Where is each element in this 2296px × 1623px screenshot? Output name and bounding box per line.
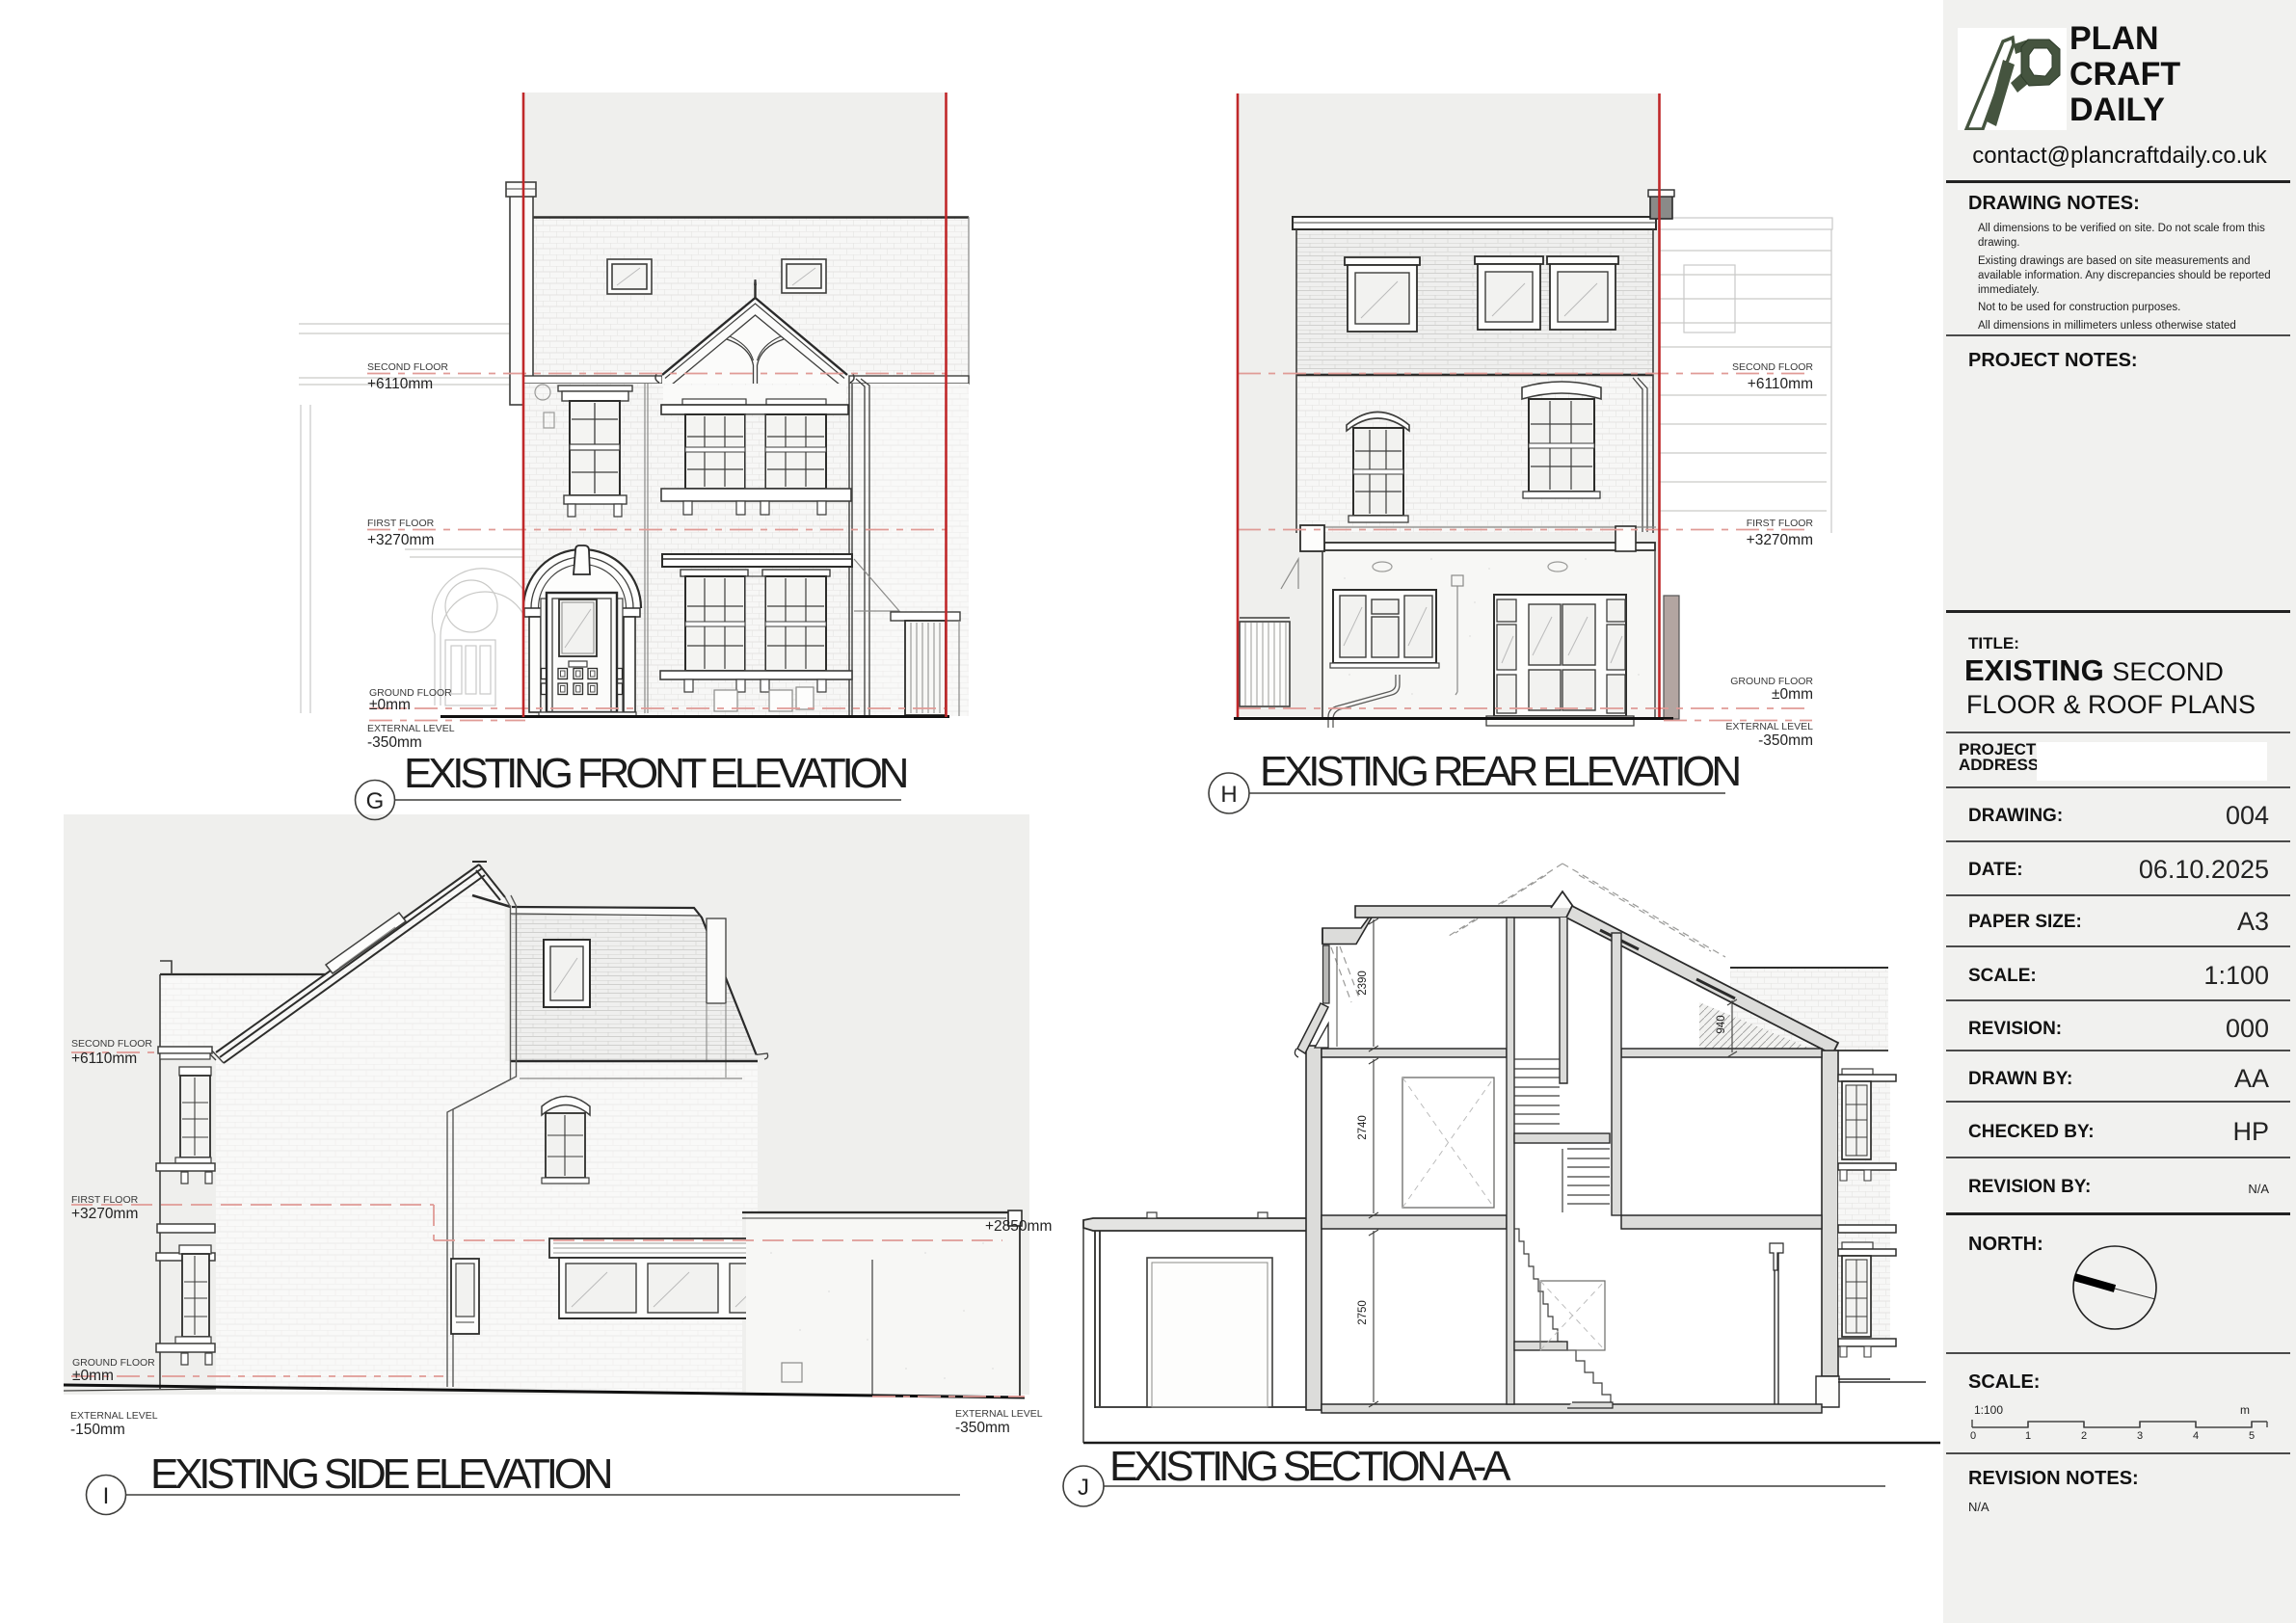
svg-text:FIRST FLOOR: FIRST FLOOR <box>71 1194 139 1206</box>
svg-text:3: 3 <box>2137 1430 2143 1441</box>
svg-text:FIRST FLOOR: FIRST FLOOR <box>1747 518 1814 529</box>
svg-text:m: m <box>2240 1403 2250 1417</box>
svg-text:I: I <box>103 1483 110 1509</box>
svg-text:H: H <box>1220 782 1237 808</box>
svg-text:940: 940 <box>1716 1015 1727 1033</box>
svg-text:EXTERNAL LEVEL: EXTERNAL LEVEL <box>70 1410 158 1422</box>
svg-text:+3270mm: +3270mm <box>367 532 434 548</box>
svg-text:EXISTING REAR ELEVATION: EXISTING REAR ELEVATION <box>1260 748 1739 795</box>
svg-text:±0mm: ±0mm <box>72 1368 114 1384</box>
svg-text:±0mm: ±0mm <box>369 697 411 713</box>
svg-text:EXTERNAL LEVEL: EXTERNAL LEVEL <box>955 1408 1043 1420</box>
svg-text:0: 0 <box>1970 1430 1976 1441</box>
svg-text:1: 1 <box>2025 1430 2031 1441</box>
svg-text:5: 5 <box>2249 1430 2255 1441</box>
svg-text:2750: 2750 <box>1357 1300 1369 1325</box>
svg-text:EXISTING SIDE ELEVATION: EXISTING SIDE ELEVATION <box>150 1450 611 1498</box>
svg-text:-150mm: -150mm <box>70 1422 125 1438</box>
svg-text:2740: 2740 <box>1357 1115 1369 1140</box>
svg-text:EXISTING FRONT ELEVATION: EXISTING FRONT ELEVATION <box>404 750 907 797</box>
svg-text:+6110mm: +6110mm <box>367 376 433 392</box>
svg-text:4: 4 <box>2193 1430 2199 1441</box>
svg-text:FIRST FLOOR: FIRST FLOOR <box>367 518 435 529</box>
svg-text:2: 2 <box>2081 1430 2087 1441</box>
svg-text:SECOND FLOOR: SECOND FLOOR <box>71 1038 152 1050</box>
svg-text:+3270mm: +3270mm <box>1747 532 1813 548</box>
svg-text:G: G <box>366 788 385 814</box>
svg-text:+3270mm: +3270mm <box>71 1206 138 1222</box>
svg-text:+2850mm: +2850mm <box>985 1218 1052 1235</box>
svg-text:SECOND FLOOR: SECOND FLOOR <box>1732 361 1813 373</box>
svg-text:1:100: 1:100 <box>1974 1403 2003 1417</box>
svg-text:EXTERNAL LEVEL: EXTERNAL LEVEL <box>367 723 455 734</box>
svg-text:-350mm: -350mm <box>367 734 422 751</box>
svg-text:EXISTING SECTION A-A: EXISTING SECTION A-A <box>1109 1443 1511 1490</box>
svg-text:±0mm: ±0mm <box>1772 686 1813 703</box>
svg-text:J: J <box>1078 1475 1089 1501</box>
svg-text:-350mm: -350mm <box>1758 732 1813 749</box>
svg-text:SECOND FLOOR: SECOND FLOOR <box>367 361 448 373</box>
svg-text:+6110mm: +6110mm <box>71 1051 137 1067</box>
svg-text:EXTERNAL LEVEL: EXTERNAL LEVEL <box>1725 721 1813 732</box>
svg-text:2390: 2390 <box>1357 971 1369 996</box>
svg-text:-350mm: -350mm <box>955 1420 1010 1436</box>
svg-text:+6110mm: +6110mm <box>1748 376 1813 392</box>
